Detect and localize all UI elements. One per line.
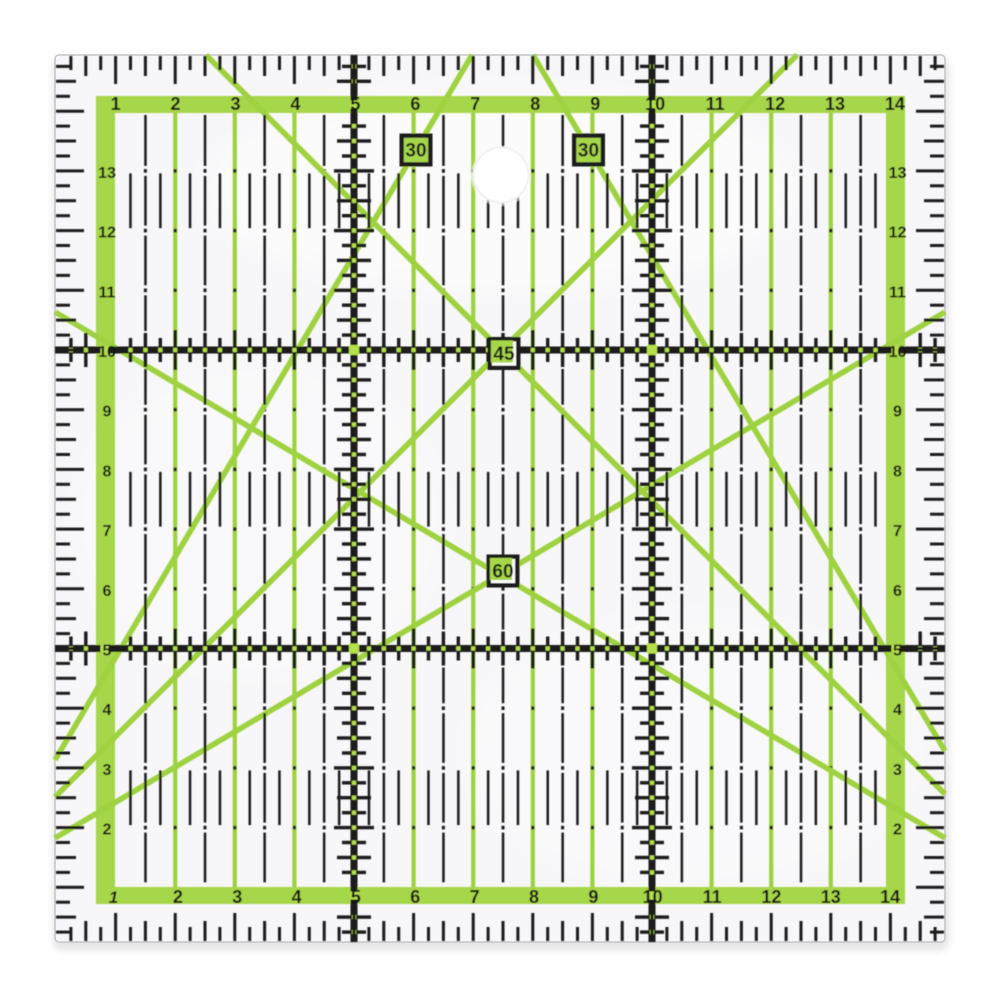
svg-text:14: 14 — [880, 887, 900, 907]
svg-text:11: 11 — [703, 887, 722, 907]
svg-text:11: 11 — [706, 94, 725, 114]
svg-text:10: 10 — [643, 887, 663, 907]
svg-text:9: 9 — [588, 887, 598, 907]
svg-text:2: 2 — [103, 822, 112, 839]
svg-text:8: 8 — [530, 94, 540, 114]
svg-text:13: 13 — [889, 165, 907, 182]
svg-text:8: 8 — [103, 463, 112, 480]
svg-text:5: 5 — [893, 643, 902, 660]
svg-text:4: 4 — [290, 94, 300, 114]
svg-text:7: 7 — [470, 887, 480, 907]
svg-text:12: 12 — [889, 225, 907, 242]
svg-text:13: 13 — [98, 165, 116, 182]
svg-text:5: 5 — [351, 887, 361, 907]
svg-text:3: 3 — [230, 94, 240, 114]
svg-text:9: 9 — [590, 94, 600, 114]
svg-text:7: 7 — [470, 94, 480, 114]
svg-text:5: 5 — [103, 643, 112, 660]
svg-text:6: 6 — [410, 887, 420, 907]
svg-text:9: 9 — [893, 404, 902, 421]
svg-text:10: 10 — [889, 344, 907, 361]
svg-text:8: 8 — [893, 463, 902, 480]
svg-text:13: 13 — [825, 94, 845, 114]
svg-text:4: 4 — [292, 887, 302, 907]
svg-text:12: 12 — [765, 94, 785, 114]
svg-text:6: 6 — [410, 94, 420, 114]
svg-text:30: 30 — [405, 141, 426, 162]
svg-text:2: 2 — [893, 822, 902, 839]
svg-text:10: 10 — [645, 94, 665, 114]
svg-text:6: 6 — [103, 583, 112, 600]
svg-text:3: 3 — [232, 887, 242, 907]
svg-text:30: 30 — [578, 141, 599, 162]
svg-text:3: 3 — [103, 762, 112, 779]
svg-text:2: 2 — [170, 94, 180, 114]
svg-text:4: 4 — [893, 702, 902, 719]
svg-text:7: 7 — [103, 523, 112, 540]
svg-text:1: 1 — [109, 888, 118, 907]
svg-text:14: 14 — [885, 94, 905, 114]
svg-text:1: 1 — [111, 94, 121, 114]
svg-text:11: 11 — [99, 284, 116, 301]
svg-text:6: 6 — [893, 583, 902, 600]
svg-text:12: 12 — [98, 225, 116, 242]
svg-text:8: 8 — [529, 887, 539, 907]
svg-text:5: 5 — [350, 94, 360, 114]
svg-text:12: 12 — [761, 887, 781, 907]
svg-text:45: 45 — [493, 344, 515, 365]
svg-text:13: 13 — [821, 887, 841, 907]
svg-text:11: 11 — [889, 284, 906, 301]
svg-text:4: 4 — [103, 702, 112, 719]
svg-text:9: 9 — [103, 404, 112, 421]
svg-text:7: 7 — [893, 523, 902, 540]
svg-text:2: 2 — [173, 887, 183, 907]
svg-text:10: 10 — [98, 344, 116, 361]
svg-text:3: 3 — [893, 762, 902, 779]
svg-text:60: 60 — [492, 562, 513, 583]
